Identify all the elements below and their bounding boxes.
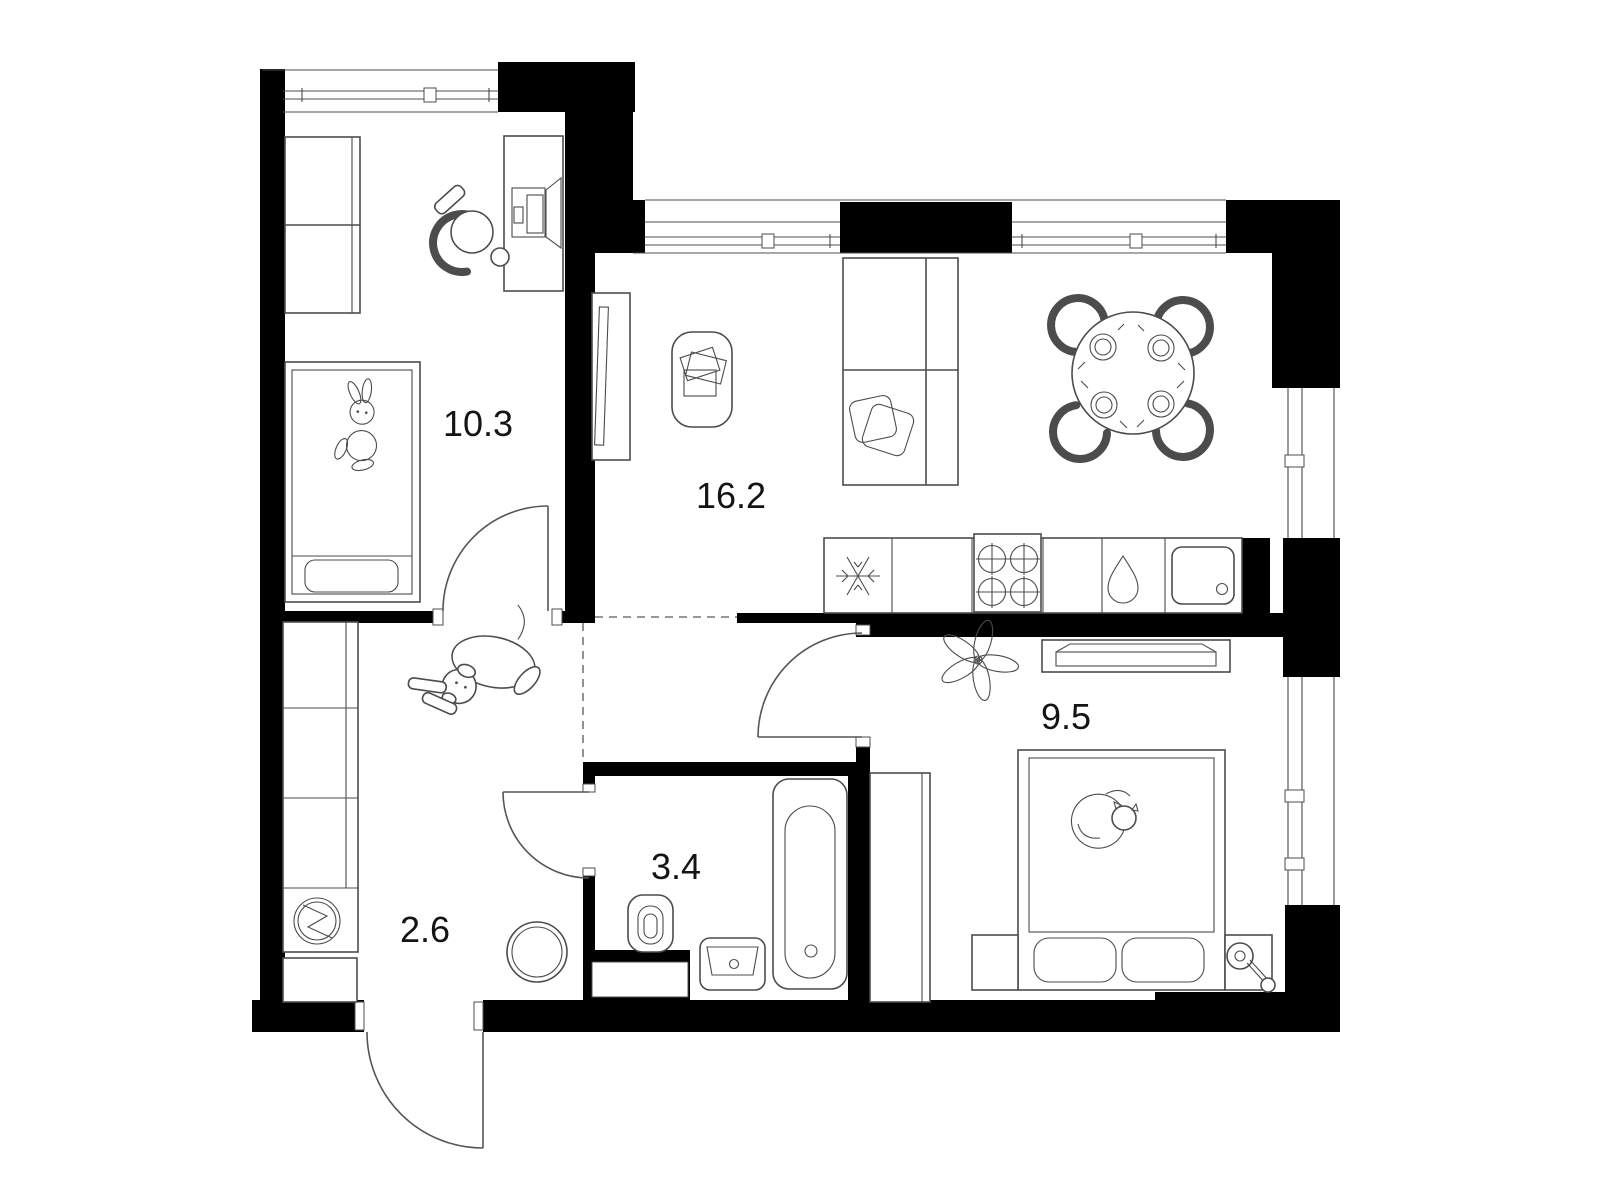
- children-room: [285, 136, 563, 602]
- bedroom-window: [1285, 677, 1334, 905]
- washbasin-icon: [700, 938, 765, 990]
- hallway-area-label: 2.6: [400, 909, 450, 950]
- living-kitchen-area-label: 16.2: [696, 475, 766, 516]
- desk-chair-icon: [433, 183, 509, 272]
- bathroom-area-label: 3.4: [651, 846, 701, 887]
- stove-icon: [974, 534, 1041, 612]
- zone-boundaries: [583, 617, 737, 762]
- round-stool-icon: [507, 922, 567, 982]
- kitchen-sink-icon: [1172, 547, 1234, 604]
- dining-table-icon: [1040, 287, 1221, 470]
- entrance-door: [355, 1002, 483, 1148]
- toilet-icon: [628, 895, 673, 952]
- living-kitchen: [592, 258, 1242, 613]
- duct-niche: [592, 962, 688, 997]
- desk-icon: [504, 136, 563, 291]
- shoe-cabinet-icon: [283, 958, 357, 1002]
- children-room-door: [433, 506, 562, 625]
- bathtub-icon: [773, 779, 847, 989]
- floor-plan-svg: 10.3 16.2 2.6 3.4 9.5: [0, 0, 1600, 1200]
- tv-stand-icon: [592, 293, 630, 460]
- children-room-window: [262, 70, 498, 112]
- bedroom-door: [758, 625, 870, 747]
- nightstand-right-icon: [1225, 935, 1275, 992]
- double-bed-icon: [1018, 750, 1225, 990]
- dining-window: [1285, 388, 1334, 538]
- floor-plan: 10.3 16.2 2.6 3.4 9.5: [0, 0, 1600, 1200]
- children-room-area-label: 10.3: [443, 403, 513, 444]
- coffee-table-icon: [672, 332, 732, 427]
- bedroom-wardrobe-icon: [870, 773, 930, 1002]
- dresser-icon: [1042, 640, 1230, 672]
- wardrobe-icon: [285, 137, 360, 313]
- bathroom-door: [503, 784, 595, 878]
- sofa-icon: [843, 258, 958, 485]
- nightstand-left-icon: [972, 935, 1018, 990]
- bedroom: [870, 618, 1275, 1002]
- bedroom-area-label: 9.5: [1041, 696, 1091, 737]
